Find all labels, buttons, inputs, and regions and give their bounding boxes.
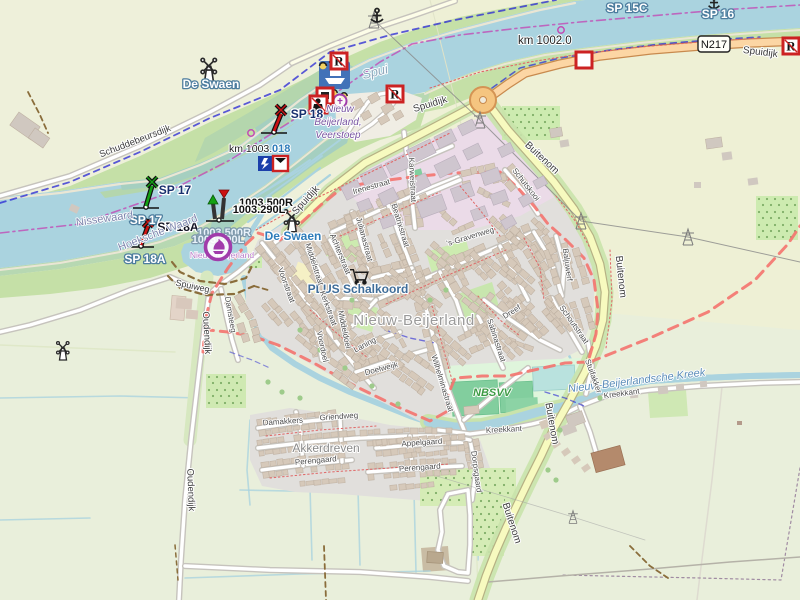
svg-text:N217: N217 [701, 39, 727, 51]
svg-text:Nieuw: Nieuw [326, 104, 355, 115]
svg-text:Nieuw-Beijerland: Nieuw-Beijerland [353, 312, 474, 329]
svg-text:NBSVV: NBSVV [473, 387, 513, 399]
svg-text:Akkerdreven: Akkerdreven [292, 441, 359, 455]
svg-text:De Swaen: De Swaen [265, 229, 322, 243]
svg-text:018: 018 [272, 143, 290, 155]
svg-text:Oudendijk: Oudendijk [200, 311, 213, 355]
svg-text:km 1002.0: km 1002.0 [518, 35, 572, 47]
svg-text:SP 18A: SP 18A [124, 252, 165, 266]
svg-text:SP 17: SP 17 [159, 183, 192, 197]
svg-text:Veerstoep: Veerstoep [315, 130, 361, 141]
svg-text:1003.290L: 1003.290L [233, 204, 286, 216]
svg-text:De Swaen: De Swaen [183, 77, 240, 91]
svg-text:SP 16: SP 16 [702, 7, 735, 21]
svg-text:Kreekkant: Kreekkant [486, 424, 523, 435]
svg-text:Oudendijk: Oudendijk [184, 468, 196, 511]
svg-text:Beijerland,: Beijerland, [314, 117, 361, 128]
svg-text:SP 15C: SP 15C [606, 1, 647, 15]
svg-text:km 1003.: km 1003. [229, 143, 272, 155]
